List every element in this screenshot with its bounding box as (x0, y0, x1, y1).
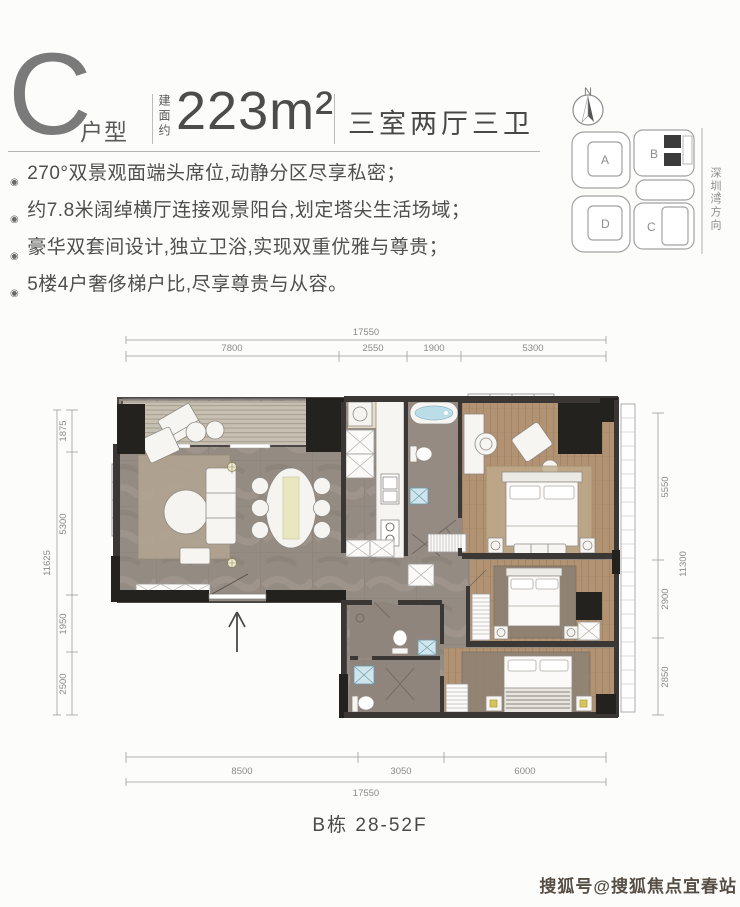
dim-top-seg: 2550 (362, 343, 383, 354)
bathroom-3 (350, 660, 440, 714)
dim-left-seg: 1875 (58, 420, 69, 441)
unit-type-label: 户型 (80, 113, 128, 147)
bathroom-1 (408, 400, 460, 556)
area-value: 223m² (176, 80, 334, 142)
pillow (508, 660, 536, 671)
dim-right-seg: 2900 (660, 588, 671, 609)
kitchen-appliance (348, 402, 372, 426)
block-B-wing (683, 136, 692, 164)
feature-item: ◉5楼4户奢侈梯户比,尽享尊贵与从容。 (10, 271, 550, 308)
layout-type: 三室两厅三卫 (348, 102, 534, 141)
toilet (392, 630, 408, 654)
feature-text: 5楼4户奢侈梯户比,尽享尊贵与从容。 (27, 271, 347, 299)
dim-left-seg: 2500 (58, 673, 69, 694)
dim-top-seg: 7800 (221, 343, 242, 354)
bathroom-2 (350, 602, 440, 658)
dim-left-seg: 1950 (58, 613, 69, 634)
dim-top-seg: 1900 (423, 343, 444, 354)
direction-arrow-icon: › (717, 188, 721, 200)
dim-top-seg: 5300 (522, 343, 543, 354)
header-rule (8, 151, 540, 152)
bedroom-3 (444, 648, 616, 714)
bullet-icon: ◉ (10, 243, 19, 271)
ottoman (180, 548, 210, 564)
wall-block (576, 592, 602, 620)
feature-text: 豪华双套间设计,独立卫浴,实现双重优雅与尊贵； (27, 234, 448, 262)
master-bedroom (446, 394, 616, 557)
building-floor-label: B栋 28-52F (0, 810, 740, 837)
block-D-label: D (601, 217, 610, 231)
block-B-unit-2 (664, 153, 681, 166)
dim-right-seg: 5550 (660, 476, 671, 497)
pillow (511, 579, 533, 589)
toilet (410, 446, 432, 462)
side-table (186, 422, 206, 442)
podium-outline (636, 180, 694, 200)
bullet-icon: ◉ (10, 280, 19, 308)
bedroom-2 (470, 560, 616, 642)
block-C-label: C (647, 220, 656, 234)
block-B-unit-1 (664, 135, 681, 148)
pillow (510, 486, 540, 499)
header-divider-1 (152, 94, 153, 144)
sliding-door (230, 444, 270, 448)
feature-item: ◉约7.8米阔绰横厅连接观景阳台,划定塔尖生活场域； (10, 197, 550, 234)
feature-text: 270°双景观面端头席位,动静分区尽享私密； (27, 160, 406, 188)
pillow (540, 660, 568, 671)
dim-top-total: 17550 (353, 327, 379, 338)
wardrobe (558, 402, 602, 454)
right-window-railing (621, 404, 635, 712)
sofa (206, 468, 236, 544)
dim-left-total: 11625 (42, 550, 53, 576)
feature-text: 约7.8米阔绰横厅连接观景阳台,划定塔尖生活场域； (27, 197, 470, 225)
coffee-table (164, 490, 208, 534)
bullet-icon: ◉ (10, 169, 19, 197)
dim-bottom-seg: 6000 (514, 766, 535, 777)
feature-list: ◉270°双景观面端头席位,动静分区尽享私密； ◉约7.8米阔绰横厅连接观景阳台… (10, 160, 550, 308)
pillow (536, 579, 558, 589)
block-C-tower (662, 207, 688, 245)
site-map: N A B C D (548, 58, 740, 270)
stool (475, 433, 497, 455)
feature-item: ◉270°双景观面端头席位,动静分区尽享私密； (10, 160, 550, 197)
pillow (544, 486, 574, 499)
master-bed-headboard (502, 472, 582, 482)
watermark: 搜狐号@搜狐焦点宜春站 (539, 872, 737, 897)
dim-bottom-total: 17550 (353, 788, 379, 799)
dim-left-seg: 5300 (58, 513, 69, 534)
dim-right-total: 11300 (678, 551, 689, 577)
bullet-icon: ◉ (10, 206, 19, 234)
entrance-arrow-icon (229, 612, 245, 652)
feature-item: ◉豪华双套间设计,独立卫浴,实现双重优雅与尊贵； (10, 234, 550, 271)
dim-right-seg: 2850 (660, 666, 671, 687)
block-A-label: A (601, 153, 609, 167)
floorplan-flyer-page: { "header": { "unit_letter": "C", "unit_… (0, 0, 740, 907)
table-runner (283, 477, 299, 539)
bedroom2-closet (472, 594, 490, 640)
header-divider-2 (334, 94, 335, 144)
side-table (206, 421, 224, 439)
floor-plan: 17550 7800 2550 1900 5300 8500 3050 6000… (0, 320, 740, 820)
block-B-label: B (650, 147, 658, 161)
dim-bottom-seg: 8500 (231, 766, 252, 777)
bedroom2-bed-headboard (506, 568, 562, 576)
area-prefix: 建面约 (157, 94, 171, 144)
dim-bottom-seg: 3050 (390, 766, 411, 777)
